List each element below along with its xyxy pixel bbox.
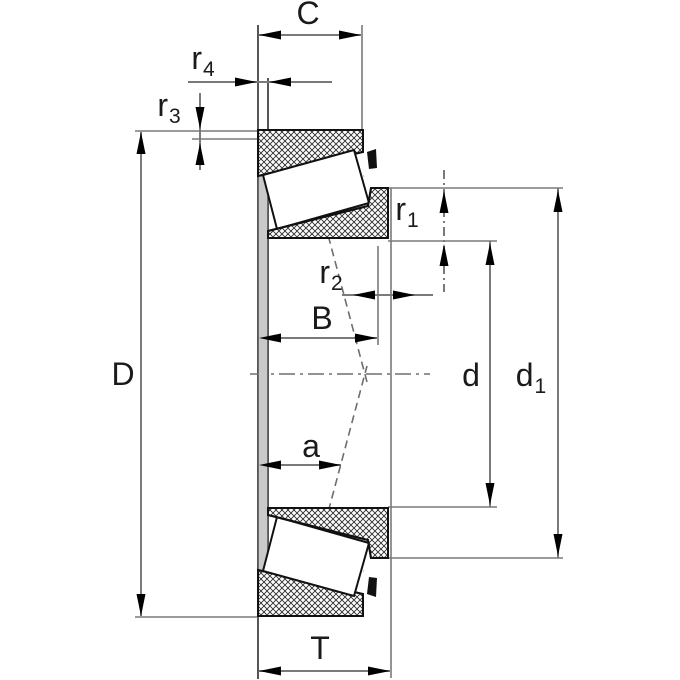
dim-label-C: C [296,0,319,29]
dim-label-B: B [311,302,332,334]
ring-back-face-band [259,130,267,617]
dim-label-r2: r2 [319,256,342,288]
bearing-rings [258,130,388,616]
bearing-dimension-drawing: C r4 r3 D B r2 a r1 d d1 T [0,0,680,680]
dim-label-T: T [310,632,330,664]
dim-label-r1: r1 [395,193,418,225]
dim-label-r4: r4 [191,42,214,74]
dim-label-d: d [462,359,480,391]
bearing-cross-section-svg [0,0,680,680]
dim-label-D: D [111,358,134,390]
dim-label-r3: r3 [157,89,180,121]
dim-label-a: a [302,430,320,462]
dim-label-d1: d1 [516,359,546,391]
